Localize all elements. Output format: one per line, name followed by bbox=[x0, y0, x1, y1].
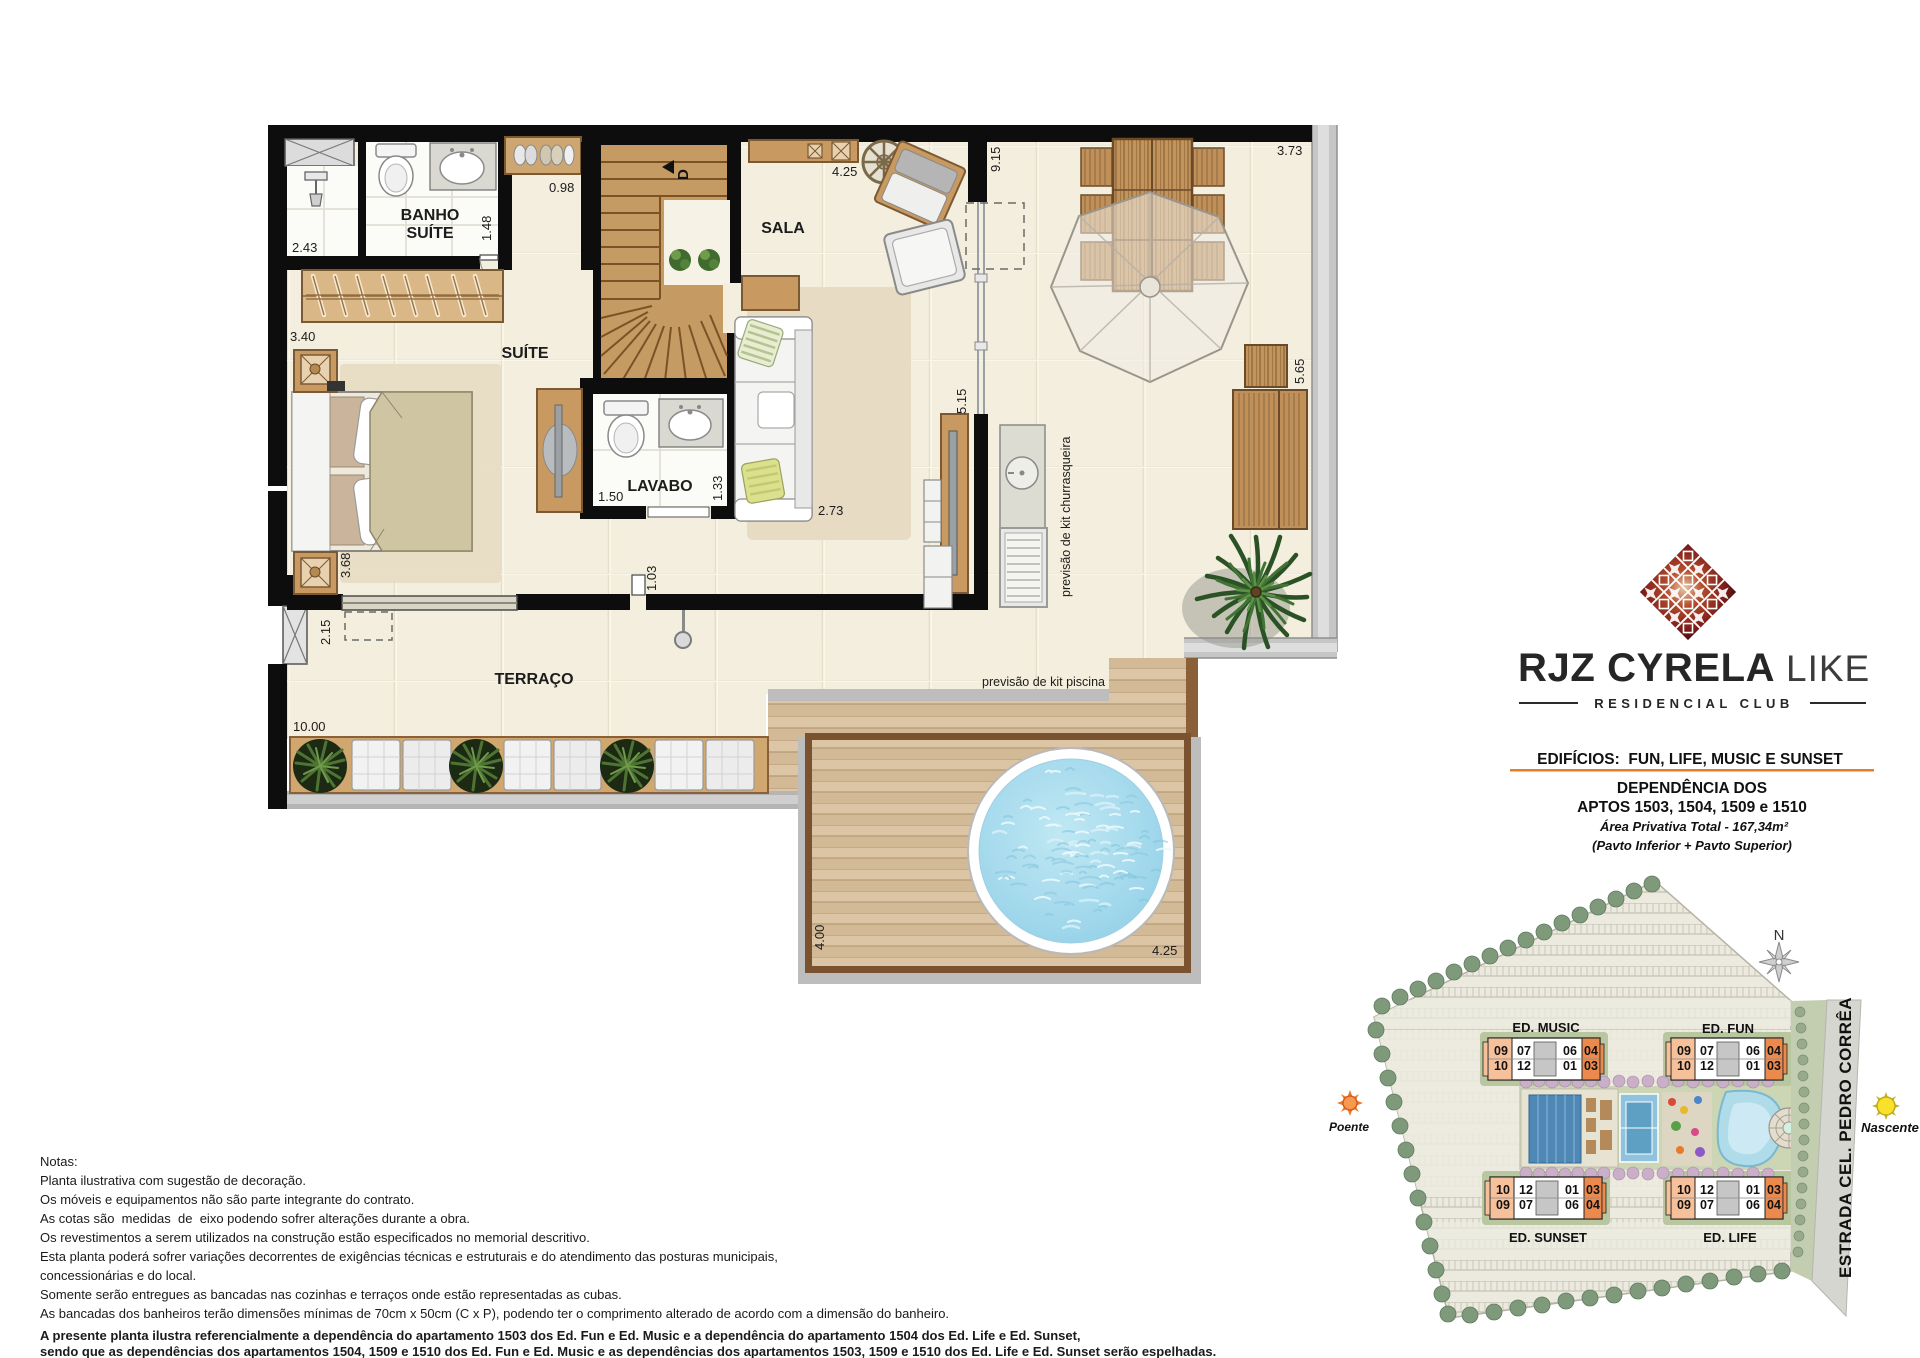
svg-text:06: 06 bbox=[1746, 1198, 1760, 1212]
svg-text:4.25: 4.25 bbox=[1152, 943, 1177, 958]
svg-text:01: 01 bbox=[1565, 1183, 1579, 1197]
svg-text:09: 09 bbox=[1677, 1044, 1691, 1058]
svg-text:(Pavto Inferior + Pavto Superi: (Pavto Inferior + Pavto Superior) bbox=[1592, 838, 1792, 853]
svg-text:N: N bbox=[1774, 927, 1785, 944]
svg-text:RESIDENCIAL CLUB: RESIDENCIAL CLUB bbox=[1594, 696, 1794, 711]
svg-text:9.15: 9.15 bbox=[988, 147, 1003, 172]
svg-text:10: 10 bbox=[1494, 1059, 1508, 1073]
svg-text:2.15: 2.15 bbox=[318, 620, 333, 645]
svg-text:APTOS 1503, 1504, 1509 e 1510: APTOS 1503, 1504, 1509 e 1510 bbox=[1577, 799, 1807, 816]
svg-text:EDIFÍCIOS: FUN, LIFE, MUSIC E: EDIFÍCIOS: FUN, LIFE, MUSIC E SUNSET bbox=[1537, 751, 1843, 768]
svg-text:12: 12 bbox=[1700, 1183, 1714, 1197]
svg-text:SALA: SALA bbox=[761, 220, 805, 237]
svg-text:01: 01 bbox=[1746, 1059, 1760, 1073]
svg-text:As bancadas dos banheiros terã: As bancadas dos banheiros terão dimensõe… bbox=[40, 1306, 949, 1321]
svg-text:Esta planta poderá sofrer vari: Esta planta poderá sofrer variações deco… bbox=[40, 1249, 778, 1264]
svg-text:A presente planta ilustra refe: A presente planta ilustra referencialmen… bbox=[40, 1328, 1081, 1343]
svg-text:10: 10 bbox=[1496, 1183, 1510, 1197]
svg-text:2.73: 2.73 bbox=[818, 503, 843, 518]
svg-text:1.50: 1.50 bbox=[598, 489, 623, 504]
svg-text:Os móveis e equipamentos não s: Os móveis e equipamentos não são parte i… bbox=[40, 1192, 414, 1207]
svg-text:3.40: 3.40 bbox=[290, 329, 315, 344]
svg-text:Somente serão entregues as ban: Somente serão entregues as bancadas nas … bbox=[40, 1287, 622, 1302]
svg-text:SUÍTE: SUÍTE bbox=[501, 343, 548, 362]
svg-text:ED. LIFE: ED. LIFE bbox=[1703, 1230, 1757, 1245]
svg-text:04: 04 bbox=[1767, 1198, 1781, 1212]
svg-text:01: 01 bbox=[1746, 1183, 1760, 1197]
svg-text:BANHO: BANHO bbox=[401, 207, 460, 224]
svg-text:09: 09 bbox=[1494, 1044, 1508, 1058]
svg-text:SUÍTE: SUÍTE bbox=[406, 223, 453, 242]
svg-text:10: 10 bbox=[1677, 1059, 1691, 1073]
svg-text:04: 04 bbox=[1767, 1044, 1781, 1058]
svg-text:ED. MUSIC: ED. MUSIC bbox=[1512, 1020, 1580, 1035]
svg-text:06: 06 bbox=[1746, 1044, 1760, 1058]
svg-text:previsão de kit piscina: previsão de kit piscina bbox=[982, 675, 1105, 689]
svg-text:concessionárias e do local.: concessionárias e do local. bbox=[40, 1268, 196, 1283]
svg-text:4.00: 4.00 bbox=[812, 925, 827, 950]
svg-text:D: D bbox=[675, 169, 692, 180]
svg-text:Notas:: Notas: bbox=[40, 1154, 78, 1169]
svg-text:TERRAÇO: TERRAÇO bbox=[494, 671, 573, 688]
svg-text:Poente: Poente bbox=[1329, 1120, 1369, 1134]
svg-text:04: 04 bbox=[1584, 1044, 1598, 1058]
svg-text:12: 12 bbox=[1519, 1183, 1533, 1197]
svg-text:06: 06 bbox=[1563, 1044, 1577, 1058]
svg-text:As cotas são medidas de eix: As cotas são medidas de eixo podendo sof… bbox=[40, 1211, 470, 1226]
svg-text:10: 10 bbox=[1677, 1183, 1691, 1197]
svg-text:3.73: 3.73 bbox=[1277, 143, 1302, 158]
svg-text:0.98: 0.98 bbox=[549, 180, 574, 195]
svg-text:03: 03 bbox=[1584, 1059, 1598, 1073]
svg-text:5.65: 5.65 bbox=[1292, 359, 1307, 384]
svg-text:1.03: 1.03 bbox=[644, 566, 659, 591]
svg-text:Os revestimentos a serem utili: Os revestimentos a serem utilizados na c… bbox=[40, 1230, 590, 1245]
svg-text:5.15: 5.15 bbox=[954, 389, 969, 414]
svg-text:2.43: 2.43 bbox=[292, 240, 317, 255]
svg-text:RJZ CYRELA: RJZ CYRELA bbox=[1518, 646, 1775, 690]
svg-text:09: 09 bbox=[1677, 1198, 1691, 1212]
svg-text:Nascente: Nascente bbox=[1861, 1120, 1919, 1135]
svg-text:12: 12 bbox=[1517, 1059, 1531, 1073]
svg-text:03: 03 bbox=[1586, 1183, 1600, 1197]
svg-text:04: 04 bbox=[1586, 1198, 1600, 1212]
svg-text:07: 07 bbox=[1519, 1198, 1533, 1212]
svg-text:07: 07 bbox=[1517, 1044, 1531, 1058]
svg-text:03: 03 bbox=[1767, 1059, 1781, 1073]
svg-text:LAVABO: LAVABO bbox=[627, 478, 692, 495]
svg-text:1.33: 1.33 bbox=[710, 476, 725, 501]
svg-text:Planta ilustrativa com sugestã: Planta ilustrativa com sugestão de decor… bbox=[40, 1173, 306, 1188]
svg-text:10.00: 10.00 bbox=[293, 719, 326, 734]
svg-text:01: 01 bbox=[1563, 1059, 1577, 1073]
svg-text:DEPENDÊNCIA DOS: DEPENDÊNCIA DOS bbox=[1617, 779, 1767, 797]
svg-text:Área Privativa Total - 167,34m: Área Privativa Total - 167,34m² bbox=[1599, 819, 1789, 834]
svg-text:07: 07 bbox=[1700, 1044, 1714, 1058]
svg-text:3.68: 3.68 bbox=[338, 553, 353, 578]
svg-text:03: 03 bbox=[1767, 1183, 1781, 1197]
svg-text:ED. SUNSET: ED. SUNSET bbox=[1509, 1230, 1587, 1245]
svg-text:sendo que as dependências dos: sendo que as dependências dos apartament… bbox=[40, 1344, 1216, 1358]
svg-text:07: 07 bbox=[1700, 1198, 1714, 1212]
svg-text:LIKE: LIKE bbox=[1786, 648, 1870, 689]
svg-text:06: 06 bbox=[1565, 1198, 1579, 1212]
svg-text:ESTRADA CEL. PEDRO CORRÊA: ESTRADA CEL. PEDRO CORRÊA bbox=[1836, 997, 1855, 1278]
svg-text:4.25: 4.25 bbox=[832, 164, 857, 179]
svg-text:ED. FUN: ED. FUN bbox=[1702, 1021, 1754, 1036]
svg-text:12: 12 bbox=[1700, 1059, 1714, 1073]
svg-text:1.48: 1.48 bbox=[479, 216, 494, 241]
svg-text:previsão de kit churrasqueira: previsão de kit churrasqueira bbox=[1059, 436, 1073, 597]
svg-text:09: 09 bbox=[1496, 1198, 1510, 1212]
